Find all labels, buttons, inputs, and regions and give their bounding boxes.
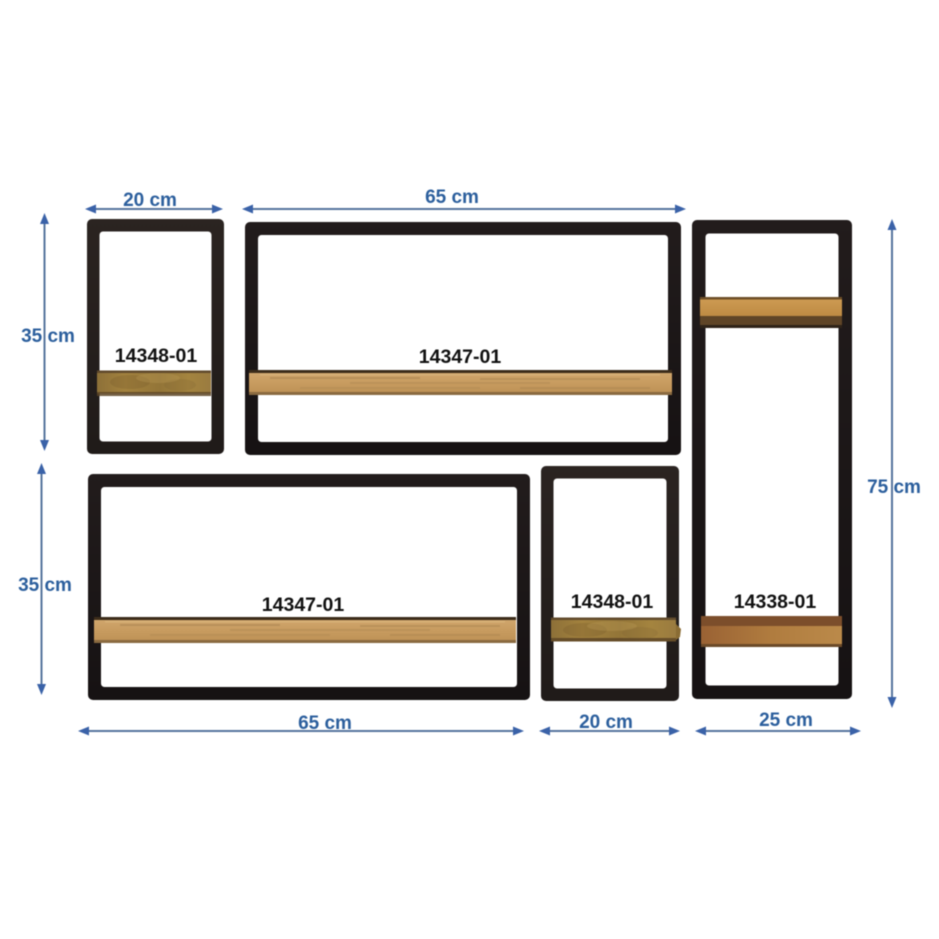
svg-text:14347-01: 14347-01	[419, 346, 502, 368]
svg-text:35 cm: 35 cm	[18, 575, 72, 596]
svg-text:20 cm: 20 cm	[123, 190, 177, 211]
svg-text:65 cm: 65 cm	[425, 187, 479, 208]
svg-text:75 cm: 75 cm	[867, 477, 921, 498]
svg-text:35 cm: 35 cm	[21, 326, 75, 347]
svg-text:20 cm: 20 cm	[579, 712, 633, 733]
svg-text:65 cm: 65 cm	[298, 713, 352, 734]
svg-text:14338-01: 14338-01	[734, 591, 817, 613]
svg-text:14347-01: 14347-01	[262, 594, 345, 616]
svg-text:14348-01: 14348-01	[571, 591, 654, 613]
svg-text:25 cm: 25 cm	[759, 710, 813, 731]
svg-text:14348-01: 14348-01	[115, 345, 198, 367]
